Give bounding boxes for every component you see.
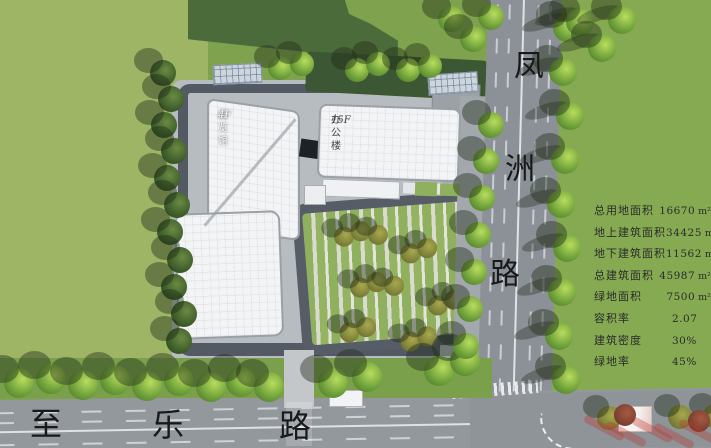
stat-row: 绿地面积 7500 m² <box>594 288 711 301</box>
stat-label: 总用地面积 <box>594 202 659 218</box>
stat-unit: m² <box>698 206 711 217</box>
stat-label: 建筑密度 <box>594 332 672 348</box>
vertical-road-name-char: 凤 <box>514 52 544 82</box>
stat-value: 30% <box>672 335 697 347</box>
tree <box>457 296 483 322</box>
site-statistics-table: 总用地面积 16670 m² 地上建筑面积 34425 m² 地下建筑面积 11… <box>594 202 711 375</box>
stat-unit: m² <box>705 228 711 239</box>
building-floors: 4F <box>218 109 231 122</box>
stat-value: 11562 <box>666 248 702 260</box>
tree <box>545 322 573 350</box>
vertical-road-name-char: 洲 <box>505 155 535 185</box>
stat-label: 地下建筑面积 <box>594 245 666 261</box>
tree <box>453 333 479 359</box>
tree <box>465 222 491 248</box>
tree <box>551 146 579 174</box>
stat-value: 2.07 <box>672 313 697 325</box>
tree <box>478 112 504 138</box>
stat-label: 绿地率 <box>594 353 672 369</box>
tree <box>552 366 580 394</box>
stat-value: 34425 <box>666 227 702 239</box>
tree <box>556 102 584 130</box>
site-plan-rendering: 展览馆 4F 办公楼 15F 凤 洲 路 至 乐 路 总用地面积 16670 m… <box>0 0 711 448</box>
tree <box>588 34 616 62</box>
stat-value: 7500 <box>666 291 695 303</box>
tree <box>254 372 284 402</box>
stat-row: 地上建筑面积 34425 m² <box>594 224 711 237</box>
stat-label: 地上建筑面积 <box>594 224 666 240</box>
stat-label: 容积率 <box>594 310 672 326</box>
horizontal-road-name-char: 乐 <box>152 409 184 441</box>
vertical-road-name-char: 路 <box>490 260 520 290</box>
stat-value: 45% <box>672 356 697 368</box>
tree <box>290 52 314 76</box>
tree <box>553 234 581 262</box>
tree <box>460 26 486 52</box>
stat-label: 绿地面积 <box>594 288 666 304</box>
tree <box>418 54 442 78</box>
stat-row: 总用地面积 16670 m² <box>594 202 711 215</box>
stat-value: 45987 <box>659 270 695 282</box>
tree <box>478 4 504 30</box>
stat-row: 容积率 2.07 <box>594 310 711 323</box>
tree <box>469 185 495 211</box>
horizontal-road-name-char: 至 <box>30 408 62 440</box>
tree <box>473 148 499 174</box>
stat-label: 总建筑面积 <box>594 267 659 283</box>
tree <box>548 278 576 306</box>
stat-row: 建筑密度 30% <box>594 332 711 345</box>
horizontal-road-name-char: 路 <box>279 410 311 442</box>
stat-unit: m² <box>698 271 711 282</box>
stat-unit: m² <box>705 249 711 260</box>
tree <box>547 190 575 218</box>
stat-row: 地下建筑面积 11562 m² <box>594 245 711 258</box>
stat-row: 总建筑面积 45987 m² <box>594 267 711 280</box>
building-floors: 15F <box>331 114 351 127</box>
stat-row: 绿地率 45% <box>594 353 711 366</box>
tree <box>352 362 382 392</box>
stat-unit: m² <box>698 292 711 303</box>
tree <box>461 259 487 285</box>
stat-value: 16670 <box>659 205 695 217</box>
tree <box>166 328 192 354</box>
tree <box>608 6 636 34</box>
tree <box>549 58 577 86</box>
